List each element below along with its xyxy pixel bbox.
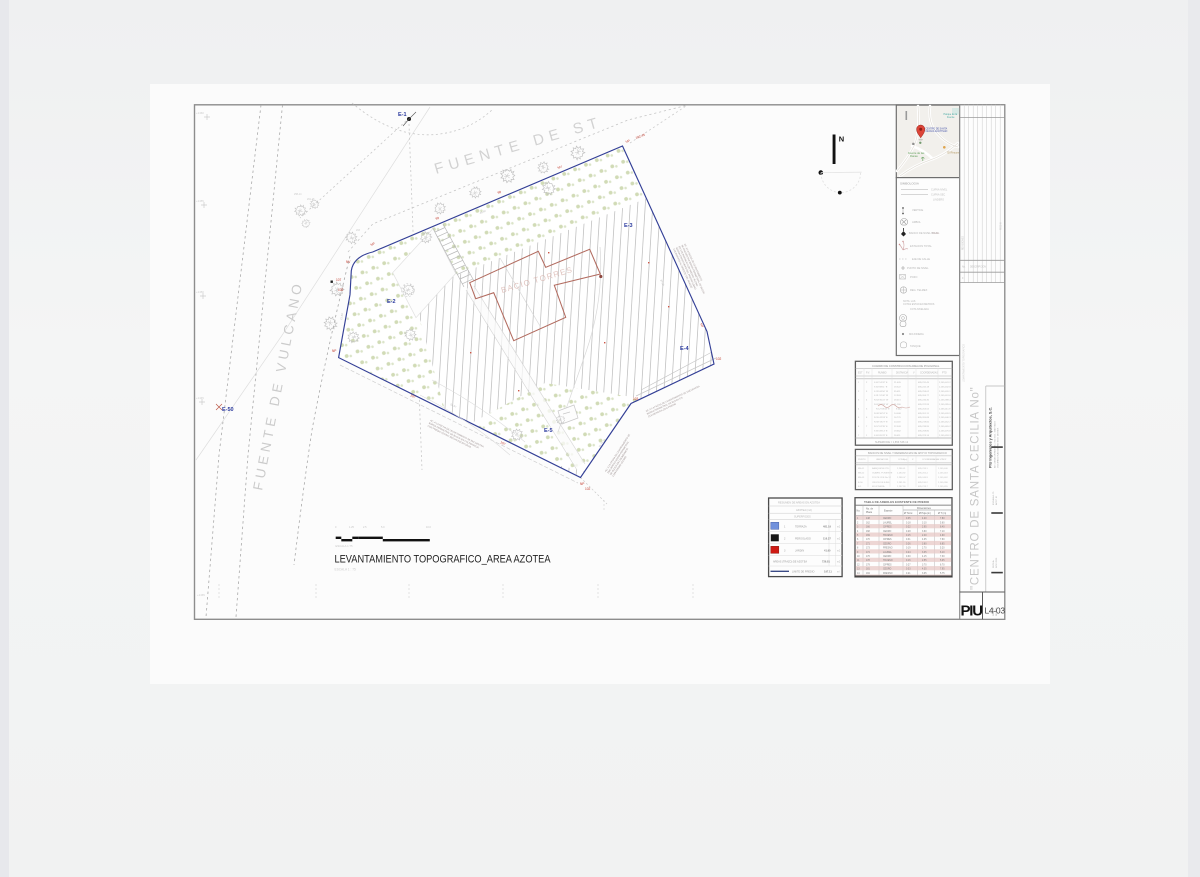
svg-text:5.75: 5.75	[940, 573, 945, 575]
svg-text:2,286.41: 2,286.41	[897, 468, 906, 470]
svg-text:ESTACION TOTAL: ESTACION TOTAL	[910, 244, 932, 248]
svg-text:102: 102	[338, 288, 344, 292]
svg-text:263: 263	[356, 229, 361, 232]
svg-text:S 28°44'56" W: S 28°44'56" W	[874, 391, 889, 393]
svg-text:S 63°05'29" E: S 63°05'29" E	[874, 435, 888, 437]
svg-text:E-3: E-3	[624, 223, 633, 229]
svg-text:CIPRES: CIPRES	[883, 527, 892, 529]
svg-text:CEDRO: CEDRO	[883, 569, 892, 571]
svg-text:0.28: 0.28	[906, 531, 911, 533]
svg-text:726.81: 726.81	[822, 559, 830, 563]
svg-text:107: 107	[336, 278, 342, 282]
svg-text:+1460: +1460	[196, 111, 204, 115]
svg-text:2,165,441.2: 2,165,441.2	[939, 382, 951, 384]
svg-text:0.31: 0.31	[906, 539, 911, 541]
svg-text:Fuente: Fuente	[947, 116, 955, 119]
svg-text:RUMBO: RUMBO	[878, 373, 887, 375]
svg-text:SIMBOLOGIA: SIMBOLOGIA	[900, 182, 919, 186]
svg-text:26.411: 26.411	[894, 435, 901, 437]
svg-text:TABLA DE ARBOLES EXISTENTE DE: TABLA DE ARBOLES EXISTENTE DE PREDIO	[864, 500, 930, 504]
svg-text:485,246.9: 485,246.9	[918, 477, 929, 479]
svg-text:CIPRES: CIPRES	[883, 564, 892, 566]
svg-text:UBICACION: UBICACION	[876, 458, 889, 461]
svg-text:FECHA: FECHA	[992, 560, 995, 568]
svg-text:485,264.77: 485,264.77	[918, 395, 930, 397]
svg-text:258-14: 258-14	[294, 193, 302, 196]
svg-text:CEDRO: CEDRO	[883, 531, 892, 533]
svg-text:REG. TELMEX: REG. TELMEX	[910, 288, 928, 292]
svg-text:6.10: 6.10	[940, 552, 945, 554]
svg-text:Ø T (m): Ø T (m)	[938, 512, 946, 515]
svg-text:485,205.89: 485,205.89	[918, 417, 930, 419]
svg-text:Especie: Especie	[884, 510, 893, 513]
svg-text:E-5: E-5	[544, 428, 553, 434]
svg-text:Ranas: Ranas	[910, 154, 918, 158]
svg-text:41.90: 41.90	[824, 549, 831, 553]
svg-text:TRUENO: TRUENO	[883, 560, 893, 562]
svg-text:EST: EST	[858, 373, 863, 375]
svg-text:485,223.14: 485,223.14	[918, 435, 930, 437]
svg-text:4.20: 4.20	[922, 518, 927, 520]
svg-text:COORDENADAS: COORDENADAS	[920, 372, 938, 375]
svg-text:Placa: Placa	[866, 511, 873, 514]
svg-text:EJE DE CALLE: EJE DE CALLE	[912, 257, 930, 261]
svg-text:16.770: 16.770	[894, 417, 901, 419]
svg-text:485,222.93: 485,222.93	[918, 404, 930, 406]
svg-text:E-50: E-50	[858, 482, 863, 484]
svg-text:485,219.7: 485,219.7	[918, 486, 929, 488]
svg-text:2,165,426.5: 2,165,426.5	[939, 413, 951, 415]
svg-text:AREAS (TRAZO) DE AZOTEA: AREAS (TRAZO) DE AZOTEA	[773, 560, 807, 563]
svg-text:RESUMEN DE AREAS EN AZOTEA: RESUMEN DE AREAS EN AZOTEA	[778, 501, 820, 505]
svg-text:10.0: 10.0	[426, 526, 431, 529]
svg-text:GUARN. PONIENTE: GUARN. PONIENTE	[872, 472, 893, 475]
svg-text:2.55: 2.55	[922, 560, 927, 562]
svg-text:2,165,411.9: 2,165,411.9	[939, 408, 951, 410]
svg-text:28.415: 28.415	[894, 400, 901, 402]
svg-text:0.15: 0.15	[906, 535, 911, 537]
svg-text:LIMITE DE PREDIO: LIMITE DE PREDIO	[792, 571, 815, 574]
svg-text:2,287.90: 2,287.90	[897, 486, 906, 488]
svg-text:N 58°19'27" E: N 58°19'27" E	[874, 422, 888, 424]
svg-text:5.60: 5.60	[940, 522, 945, 524]
svg-text:2,165,396: 2,165,396	[938, 482, 949, 484]
svg-text:N 57°02'35" E: N 57°02'35" E	[874, 426, 888, 428]
svg-text:2.95: 2.95	[922, 527, 927, 529]
svg-text:CIPRES: CIPRES	[883, 539, 892, 541]
svg-text:103: 103	[633, 397, 639, 401]
svg-text:N 55°42'03" E: N 55°42'03" E	[874, 417, 888, 419]
svg-text:PUNTO DE NIVEL: PUNTO DE NIVEL	[907, 266, 929, 270]
svg-text:2,165,401.6: 2,165,401.6	[939, 395, 951, 397]
svg-text:P.V.: P.V.	[866, 373, 870, 375]
svg-text:12.903: 12.903	[894, 395, 901, 397]
svg-text:COTA NIVELADA: COTA NIVELADA	[910, 308, 929, 311]
svg-text:2,281.55: 2,281.55	[897, 482, 906, 484]
svg-text:LINDERO: LINDERO	[933, 199, 944, 202]
svg-text:7.10: 7.10	[940, 531, 945, 533]
svg-text:1.25: 1.25	[349, 526, 354, 529]
svg-text:2,165,476.8: 2,165,476.8	[939, 430, 951, 432]
svg-text:0.18: 0.18	[906, 522, 911, 524]
svg-text:2,165,440.3: 2,165,440.3	[939, 417, 951, 419]
svg-text:ARBOL: ARBOL	[912, 220, 921, 224]
svg-text:2.70: 2.70	[922, 548, 927, 550]
svg-text:485,201.11: 485,201.11	[918, 413, 930, 415]
svg-text:3.10: 3.10	[922, 522, 927, 524]
svg-text:3.35: 3.35	[922, 552, 927, 554]
svg-text:0.27: 0.27	[906, 564, 911, 566]
svg-text:S 62°14'32" E: S 62°14'32" E	[874, 382, 888, 384]
svg-text:485,204.52: 485,204.52	[918, 408, 930, 410]
svg-text:ESCALA 1:75: ESCALA 1:75	[336, 544, 354, 548]
svg-text:3.60: 3.60	[922, 531, 927, 533]
svg-text:485,233.1: 485,233.1	[918, 468, 929, 470]
svg-text:0.30: 0.30	[906, 556, 911, 558]
svg-text:FECHA: FECHA	[1000, 222, 1003, 230]
svg-text:BN-01: BN-01	[858, 468, 865, 470]
svg-text:SUPERFICIES: SUPERFICIES	[794, 516, 811, 519]
svg-text:+1445: +1445	[196, 396, 204, 400]
svg-text:2,165,440: 2,165,440	[938, 468, 949, 470]
svg-text:TERRAZA: TERRAZA	[795, 526, 807, 529]
svg-text:2,284.92: 2,284.92	[897, 473, 906, 475]
svg-text:BN-02: BN-02	[858, 473, 865, 475]
svg-text:6.40: 6.40	[940, 527, 945, 529]
svg-text:5.05: 5.05	[940, 560, 945, 562]
svg-text:S 65°28'14" E: S 65°28'14" E	[874, 430, 888, 432]
svg-text:AV. LOMAS VERDES No. 824 COL.: AV. LOMAS VERDES No. 824 COL. SANTIAGO	[994, 421, 997, 468]
svg-text:0.22: 0.22	[906, 527, 911, 529]
svg-text:4.35: 4.35	[922, 569, 927, 571]
svg-text:REVISIONES: REVISIONES	[963, 235, 965, 250]
svg-text:22.509: 22.509	[894, 426, 901, 428]
svg-text:POSTE CFE No 12: POSTE CFE No 12	[872, 477, 892, 479]
svg-text:SUPERFICIE = 1,853.728 m2: SUPERFICIE = 1,853.728 m2	[875, 441, 909, 444]
svg-text:PUNTO: PUNTO	[858, 459, 866, 461]
svg-text:4.90: 4.90	[940, 535, 945, 537]
svg-text:PIU Ingenieros y Arquitectos,: PIU Ingenieros y Arquitectos, S.C.	[989, 407, 993, 468]
svg-text:DISTANCIA: DISTANCIA	[896, 372, 909, 375]
svg-text:2,165,459.3: 2,165,459.3	[939, 435, 951, 437]
svg-text:485,219.60: 485,219.60	[918, 422, 930, 424]
svg-text:2,165,462: 2,165,462	[938, 477, 949, 479]
svg-text:0.19: 0.19	[906, 548, 911, 550]
svg-text:0.24: 0.24	[906, 552, 911, 554]
svg-text:No.: No.	[962, 267, 966, 269]
svg-text:2,165,452.7: 2,165,452.7	[939, 422, 951, 424]
svg-text:0.26: 0.26	[906, 543, 911, 545]
svg-text:BANCOS DE NIVEL Y REFERENCIAS: BANCOS DE NIVEL Y REFERENCIAS DE APOYO T…	[868, 451, 947, 455]
svg-text:E-4: E-4	[680, 346, 690, 352]
svg-text:3.80: 3.80	[922, 543, 927, 545]
svg-text:3.05: 3.05	[922, 573, 927, 575]
svg-text:CECILIA ACATITLAN: CECILIA ACATITLAN	[926, 130, 948, 133]
svg-text:CURVA SEC: CURVA SEC	[931, 194, 945, 197]
svg-text:COORDENADAS UTM: COORDENADAS UTM	[922, 458, 945, 461]
svg-text:LAUREL: LAUREL	[883, 551, 893, 554]
svg-text:481.19: 481.19	[823, 525, 831, 529]
svg-text:"CENTRO DE SANTA CECILIA No": "CENTRO DE SANTA CECILIA No"	[970, 386, 982, 590]
svg-text:9.442: 9.442	[896, 408, 902, 410]
svg-text:CEDRO: CEDRO	[883, 556, 892, 558]
svg-text:485,190.2: 485,190.2	[918, 482, 929, 484]
svg-text:NP: NP	[332, 349, 336, 353]
svg-text:N 64°30'22" W: N 64°30'22" W	[874, 400, 889, 402]
svg-text:2,288.07: 2,288.07	[897, 477, 906, 479]
svg-text:5.20: 5.20	[940, 548, 945, 550]
svg-text:485,246.30: 485,246.30	[918, 400, 930, 402]
svg-text:7.30: 7.30	[940, 556, 945, 558]
svg-text:2.40: 2.40	[922, 535, 927, 537]
svg-text:ESCALA 1:75: ESCALA 1:75	[992, 491, 995, 505]
svg-text:L4-03: L4-03	[985, 606, 1006, 616]
svg-text:24.118: 24.118	[894, 422, 901, 424]
svg-text:PIU: PIU	[961, 603, 983, 620]
svg-text:2,165,388.4: 2,165,388.4	[939, 400, 951, 402]
svg-text:Dimensiones: Dimensiones	[917, 507, 932, 510]
svg-text:+1450: +1450	[196, 290, 204, 294]
svg-text:PERGOLADO: PERGOLADO	[795, 538, 811, 541]
svg-text:19.662: 19.662	[894, 430, 901, 432]
svg-text:CUADRO DE CONSTRUCCION AREA D: CUADRO DE CONSTRUCCION AREA DE POLIGONAL	[872, 364, 940, 368]
svg-text:3.70: 3.70	[922, 564, 927, 566]
svg-text:485,205.4: 485,205.4	[918, 473, 929, 475]
svg-text:MOJONERA: MOJONERA	[872, 485, 885, 488]
svg-text:N 09°30'51" E: N 09°30'51" E	[874, 413, 888, 415]
svg-text:0.21: 0.21	[906, 573, 911, 575]
svg-text:MOJONERA: MOJONERA	[909, 332, 924, 336]
svg-text:2,165,455: 2,165,455	[938, 486, 949, 488]
svg-text:BANQUETA OTE.: BANQUETA OTE.	[872, 467, 890, 470]
svg-text:485,259.02: 485,259.02	[918, 391, 930, 393]
svg-text:PTO: PTO	[942, 373, 947, 375]
svg-text:ESCALA 1 : 75: ESCALA 1 : 75	[335, 568, 356, 572]
svg-text:18.522: 18.522	[894, 386, 901, 388]
svg-text:NP: NP	[580, 482, 584, 486]
svg-text:S 60°08'11" E: S 60°08'11" E	[874, 386, 888, 388]
svg-text:485,242.18: 485,242.18	[918, 386, 930, 388]
svg-text:JARDIN: JARDIN	[795, 550, 804, 553]
svg-text:FRESNO: FRESNO	[883, 573, 893, 575]
svg-text:6.85: 6.85	[940, 543, 945, 545]
svg-text:485,239.95: 485,239.95	[918, 426, 930, 428]
svg-text:CURVA NIVEL: CURVA NIVEL	[931, 189, 948, 192]
svg-text:5.0: 5.0	[381, 526, 385, 529]
svg-text:4.05: 4.05	[922, 539, 927, 541]
svg-text:7.80: 7.80	[940, 518, 945, 520]
svg-text:E-2: E-2	[387, 299, 396, 305]
svg-text:Ø Hoja (m): Ø Hoja (m)	[919, 512, 931, 515]
svg-text:2,165,418: 2,165,418	[938, 473, 949, 475]
svg-text:7.60: 7.60	[940, 539, 945, 541]
svg-text:COTA(m): COTA(m)	[898, 458, 907, 461]
svg-text:2,165,432.8: 2,165,432.8	[939, 386, 951, 388]
svg-text:7.95: 7.95	[940, 569, 945, 571]
svg-text:POZO: POZO	[910, 275, 917, 279]
svg-text:ACOT. M: ACOT. M	[995, 496, 998, 505]
svg-text:FRESNO: FRESNO	[883, 548, 893, 550]
svg-text:NOV 2020: NOV 2020	[996, 557, 998, 568]
svg-text:E-1: E-1	[398, 112, 407, 118]
svg-text:6.70: 6.70	[940, 564, 945, 566]
svg-text:Ø Tronc: Ø Tronc	[904, 512, 913, 515]
svg-text:0.33: 0.33	[906, 569, 911, 571]
svg-text:N: N	[839, 135, 844, 144]
svg-text:N 12°08'44" E: N 12°08'44" E	[876, 408, 890, 410]
svg-text:2,165,465.2: 2,165,465.2	[939, 426, 951, 428]
svg-text:0.16: 0.16	[906, 560, 911, 562]
svg-text:14.008: 14.008	[894, 413, 901, 415]
svg-text:E-50: E-50	[222, 407, 234, 413]
svg-text:No.: No.	[857, 510, 861, 513]
svg-text:102: 102	[716, 357, 722, 361]
svg-text:LEVANTAMIENTO TOPOGRAFICO: LEVANTAMIENTO TOPOGRAFICO	[963, 344, 966, 382]
svg-text:+1465: +1465	[197, 593, 205, 597]
svg-text:35.411: 35.411	[894, 391, 901, 393]
svg-text:+1455: +1455	[196, 199, 204, 203]
svg-text:2.5: 2.5	[363, 526, 367, 529]
svg-text:2,165,420.1: 2,165,420.1	[939, 391, 951, 393]
svg-text:485,231.45: 485,231.45	[918, 382, 930, 384]
svg-text:AZOTEA (m2): AZOTEA (m2)	[796, 509, 812, 512]
svg-text:COTAS ESTAN EN METROS: COTAS ESTAN EN METROS	[903, 303, 935, 306]
svg-text:485,258.80: 485,258.80	[918, 430, 930, 432]
svg-text:2,165,395.0: 2,165,395.0	[939, 404, 951, 406]
svg-text:CEDRO: CEDRO	[883, 543, 892, 545]
svg-text:NIVEL: NIVEL	[932, 231, 940, 235]
svg-text:LAUREL: LAUREL	[883, 521, 893, 524]
svg-text:21.405: 21.405	[894, 382, 901, 384]
svg-text:DESCRIPCION: DESCRIPCION	[970, 267, 986, 269]
svg-text:0.35: 0.35	[906, 518, 911, 520]
svg-text:4.15: 4.15	[922, 556, 927, 558]
svg-text:TRUENO: TRUENO	[883, 535, 893, 537]
svg-text:102: 102	[585, 487, 591, 491]
svg-text:197.11: 197.11	[824, 570, 832, 574]
svg-text:TANQUE: TANQUE	[910, 344, 921, 348]
svg-text:CEDRO: CEDRO	[883, 518, 892, 520]
svg-text:CRUCE DE EJES: CRUCE DE EJES	[872, 482, 890, 484]
svg-text:CENTRO DE SANTA: CENTRO DE SANTA	[926, 127, 948, 130]
svg-text:BN-03: BN-03	[858, 477, 865, 479]
svg-text:VERTICE: VERTICE	[912, 208, 923, 212]
svg-text:LEVANTAMIENTO TOPOGRAFICO_AREA: LEVANTAMIENTO TOPOGRAFICO_AREA AZOTEA	[335, 554, 552, 566]
svg-text:116.37: 116.37	[823, 537, 831, 541]
svg-text:S 31°12'40" W: S 31°12'40" W	[874, 395, 889, 397]
